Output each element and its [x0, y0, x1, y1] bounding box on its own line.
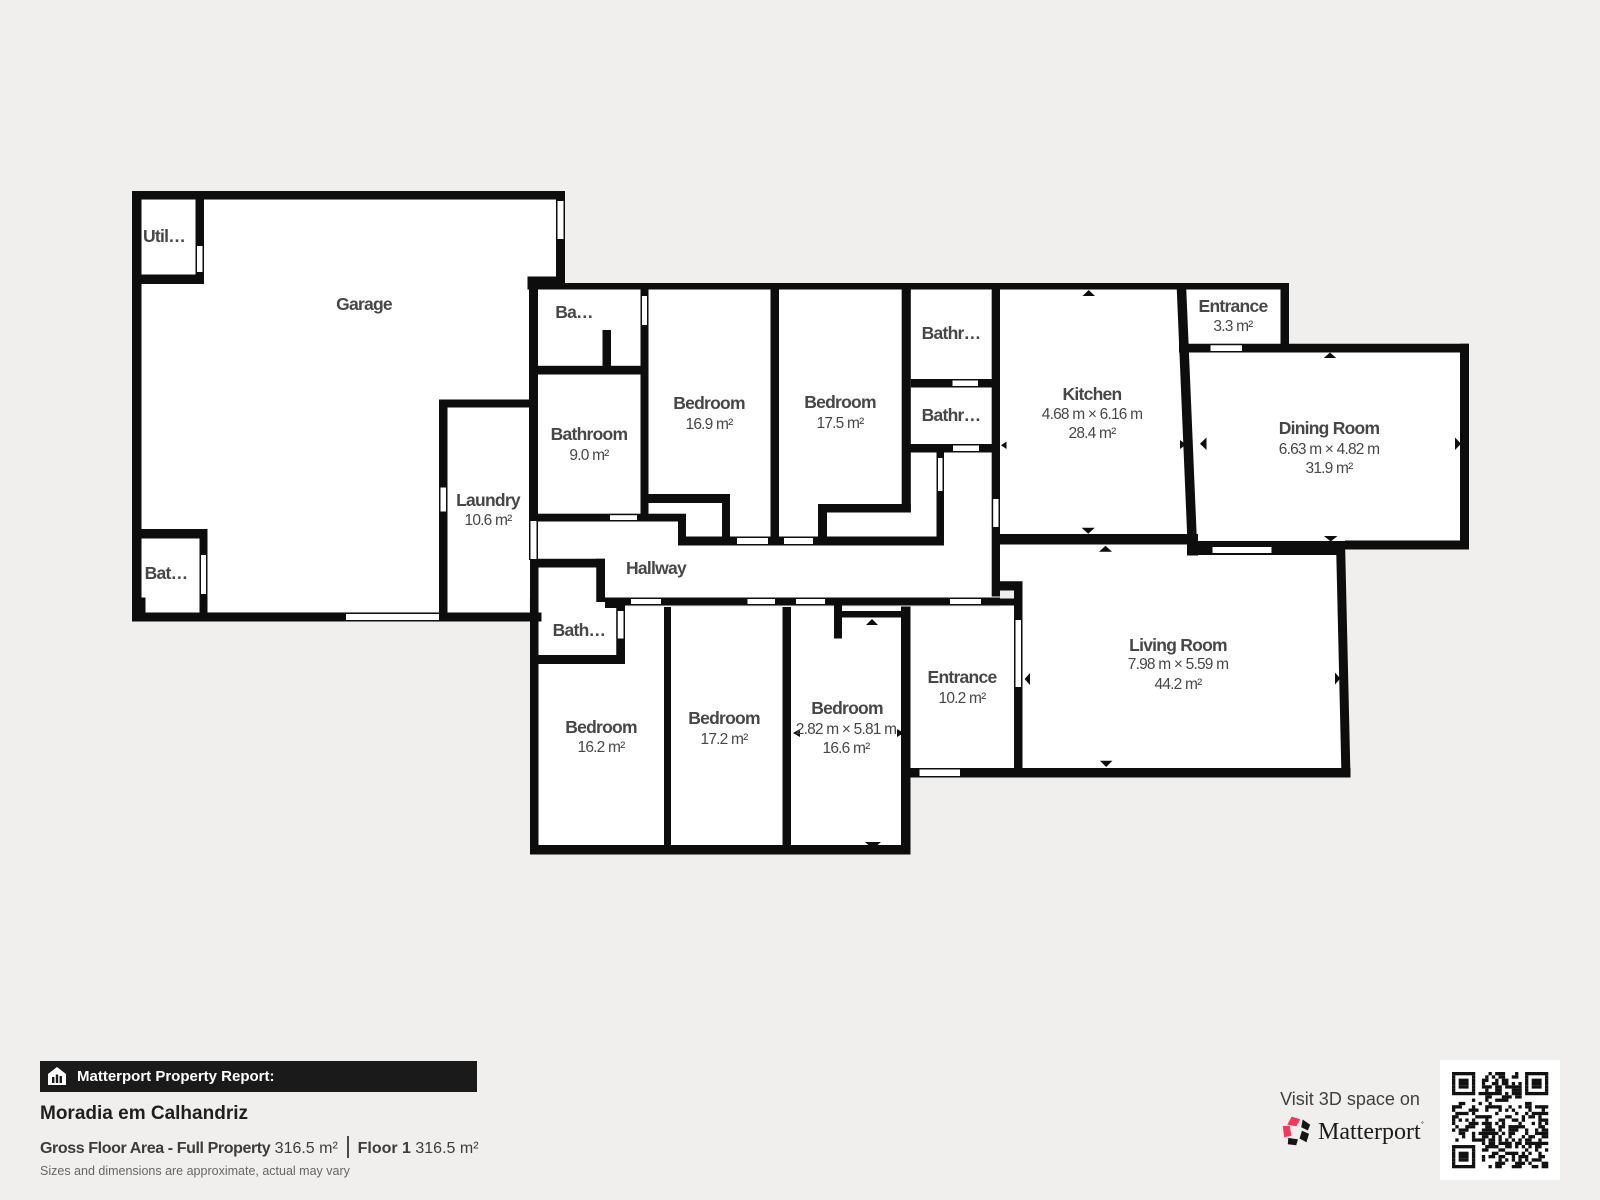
svg-text:16.6 m²: 16.6 m² — [823, 740, 871, 757]
svg-text:Bedroom: Bedroom — [688, 708, 760, 728]
svg-text:4.68 m × 6.16 m: 4.68 m × 6.16 m — [1042, 406, 1142, 423]
svg-text:Bathroom: Bathroom — [551, 424, 628, 444]
svg-text:Garage: Garage — [336, 294, 393, 314]
svg-text:10.2 m²: 10.2 m² — [939, 690, 987, 707]
svg-text:Bedroom: Bedroom — [811, 698, 883, 718]
svg-text:3.3 m²: 3.3 m² — [1213, 318, 1253, 335]
svg-text:Dining Room: Dining Room — [1279, 418, 1380, 438]
svg-text:Bat…: Bat… — [145, 563, 188, 583]
svg-text:44.2 m²: 44.2 m² — [1155, 676, 1203, 693]
svg-text:2.82 m × 5.81 m: 2.82 m × 5.81 m — [796, 721, 896, 738]
svg-text:10.6 m²: 10.6 m² — [465, 512, 513, 529]
svg-text:7.98 m × 5.59 m: 7.98 m × 5.59 m — [1128, 656, 1228, 673]
svg-text:Entrance: Entrance — [928, 667, 998, 687]
svg-text:Bedroom: Bedroom — [565, 717, 637, 737]
svg-text:16.9 m²: 16.9 m² — [686, 416, 734, 433]
svg-text:Bedroom: Bedroom — [673, 393, 745, 413]
svg-text:Bedroom: Bedroom — [804, 392, 876, 412]
svg-text:31.9 m²: 31.9 m² — [1306, 460, 1354, 477]
svg-text:Hallway: Hallway — [626, 558, 687, 578]
svg-text:Ba…: Ba… — [555, 302, 593, 322]
svg-text:28.4 m²: 28.4 m² — [1069, 425, 1117, 442]
svg-text:Living Room: Living Room — [1129, 635, 1227, 655]
svg-text:Kitchen: Kitchen — [1063, 384, 1122, 404]
svg-text:Bathr…: Bathr… — [922, 405, 981, 425]
svg-text:Entrance: Entrance — [1199, 296, 1269, 316]
svg-text:6.63 m × 4.82 m: 6.63 m × 4.82 m — [1279, 441, 1379, 458]
svg-text:Util…: Util… — [143, 226, 185, 246]
svg-text:17.5 m²: 17.5 m² — [817, 415, 865, 432]
svg-text:9.0 m²: 9.0 m² — [569, 447, 609, 464]
svg-text:Bath…: Bath… — [553, 620, 606, 640]
svg-text:17.2 m²: 17.2 m² — [701, 731, 749, 748]
svg-text:16.2 m²: 16.2 m² — [578, 739, 626, 756]
svg-text:Bathr…: Bathr… — [922, 323, 981, 343]
svg-text:Laundry: Laundry — [456, 490, 521, 510]
